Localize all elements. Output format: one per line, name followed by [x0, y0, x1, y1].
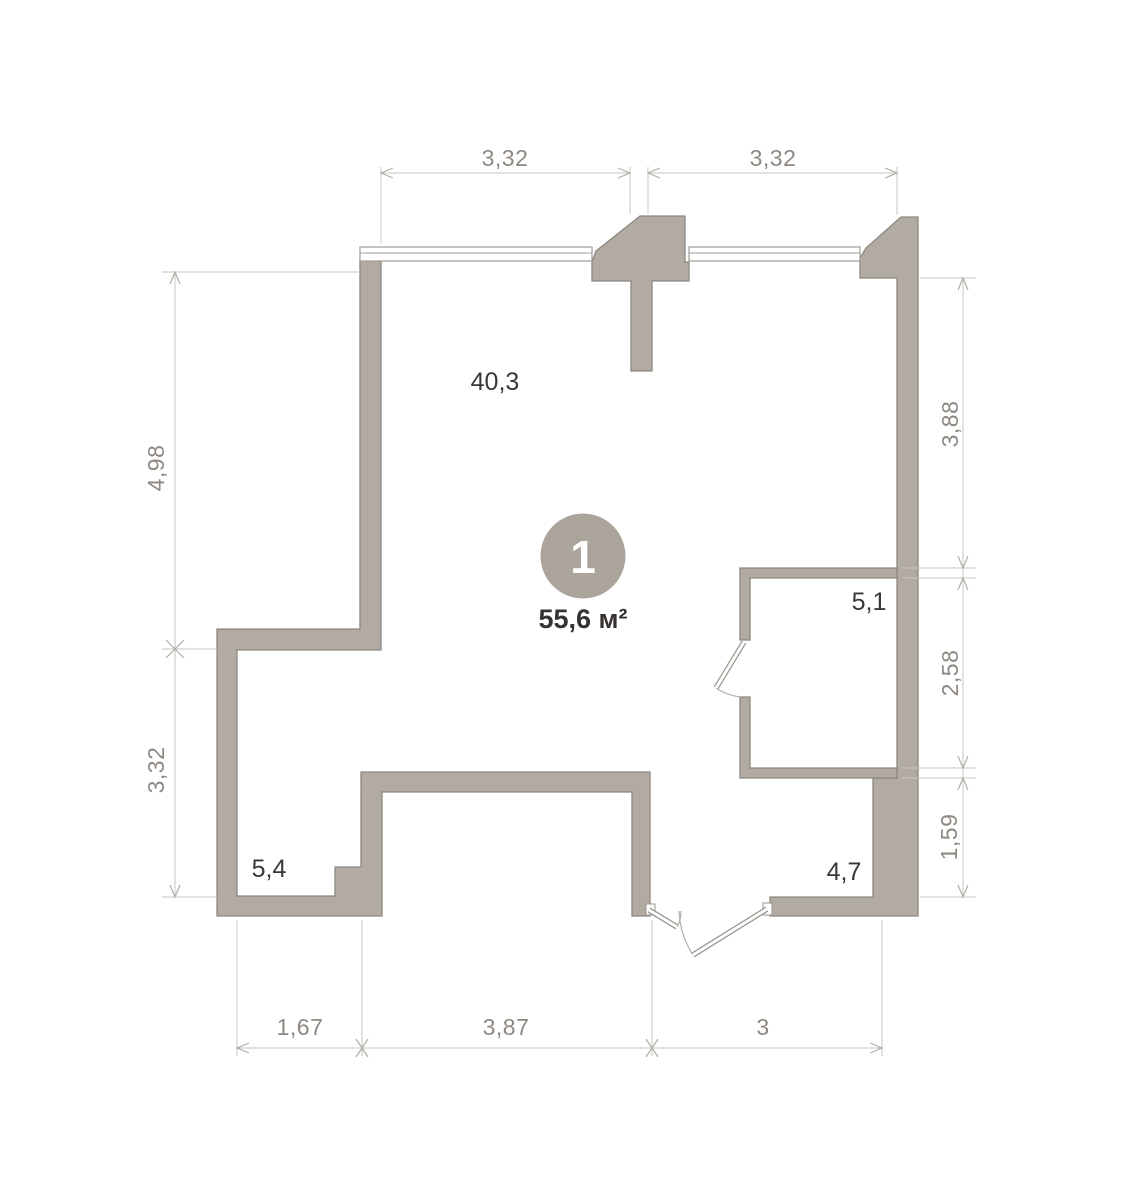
unit-badge: 1 55,6 м²: [538, 514, 627, 635]
dim-label-bottom-1: 1,67: [277, 1014, 324, 1040]
room-area-main: 40,3: [471, 368, 520, 396]
door-right-room-swing-arc: [716, 688, 741, 697]
wall-room-right-bottom: [740, 697, 897, 778]
dim-label-bottom-3: 3: [756, 1014, 769, 1040]
entrance-door-leaf-large-fill: [693, 909, 767, 955]
window-top-right: [689, 247, 860, 261]
room-area-right: 5,1: [852, 588, 887, 616]
dimension-bottom: 1,67 3,87 3: [237, 920, 882, 1057]
unit-total-area: 55,6 м²: [538, 604, 627, 634]
unit-number: 1: [570, 531, 596, 583]
wall-top-center-pier: [592, 216, 689, 371]
dim-label-bottom-2: 3,87: [483, 1014, 530, 1040]
dim-label-left-upper-wrap: 4,98: [143, 445, 169, 492]
dim-label-right-3-wrap: 1,59: [936, 814, 962, 861]
dim-label-left-lower: 3,32: [143, 747, 169, 794]
entrance-door-swing-arc-large: [679, 911, 693, 955]
dim-label-left-upper: 4,98: [143, 445, 169, 492]
wall-right-and-bottom-right: [770, 217, 918, 916]
dim-label-left-lower-wrap: 3,32: [143, 747, 169, 794]
doors: [646, 642, 772, 955]
dim-label-right-1-wrap: 3,88: [937, 401, 963, 448]
dim-label-top-right: 3,32: [750, 145, 797, 171]
door-right-room-leaf-fill: [716, 642, 744, 688]
dim-label-right-1: 3,88: [937, 401, 963, 448]
floor-plan-canvas: 3,32 3,32 4,98 3,32 3,88: [0, 0, 1123, 1200]
room-area-bottom-right: 4,7: [827, 858, 862, 886]
dim-label-right-3: 1,59: [936, 814, 962, 861]
dimension-left: 4,98 3,32: [143, 272, 360, 897]
entrance-door-leaf-small-fill: [649, 910, 677, 927]
window-top-left: [360, 247, 592, 261]
dim-label-right-2: 2,58: [937, 650, 963, 697]
room-area-bottom-left: 5,4: [252, 855, 287, 883]
dim-label-top-left: 3,32: [482, 145, 529, 171]
floor-plan-svg: 3,32 3,32 4,98 3,32 3,88: [0, 0, 1123, 1200]
dim-label-right-2-wrap: 2,58: [937, 650, 963, 697]
